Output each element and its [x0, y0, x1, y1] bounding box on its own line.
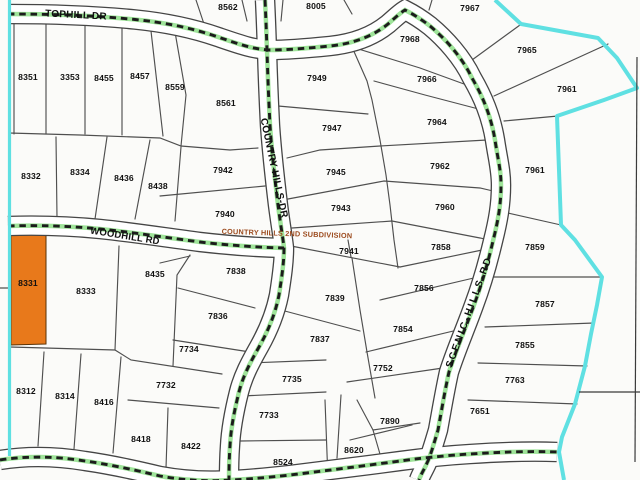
svg-text:7856: 7856 — [414, 283, 434, 293]
svg-text:7941: 7941 — [339, 246, 359, 256]
svg-text:8436: 8436 — [114, 173, 134, 183]
svg-text:7945: 7945 — [326, 167, 346, 177]
svg-text:8351: 8351 — [18, 72, 38, 82]
svg-text:8457: 8457 — [130, 71, 150, 81]
svg-text:7961: 7961 — [525, 165, 545, 175]
svg-text:7859: 7859 — [525, 242, 545, 252]
svg-text:7949: 7949 — [307, 73, 327, 83]
svg-text:7752: 7752 — [373, 363, 393, 373]
svg-text:8435: 8435 — [145, 269, 165, 279]
svg-text:7763: 7763 — [505, 375, 525, 385]
svg-text:8334: 8334 — [70, 167, 90, 177]
svg-text:8438: 8438 — [148, 181, 168, 191]
svg-text:3353: 3353 — [60, 72, 80, 82]
svg-text:7735: 7735 — [282, 374, 302, 384]
svg-text:8524: 8524 — [273, 457, 293, 467]
svg-text:7854: 7854 — [393, 324, 413, 334]
svg-text:8561: 8561 — [216, 98, 236, 108]
svg-text:7855: 7855 — [515, 340, 535, 350]
svg-text:7940: 7940 — [215, 209, 235, 219]
svg-text:7961: 7961 — [557, 84, 577, 94]
svg-text:7890: 7890 — [380, 416, 400, 426]
svg-text:7960: 7960 — [435, 202, 455, 212]
svg-text:7733: 7733 — [259, 410, 279, 420]
svg-text:8559: 8559 — [165, 82, 185, 92]
svg-text:7734: 7734 — [179, 344, 199, 354]
svg-text:8333: 8333 — [76, 286, 96, 296]
svg-text:8314: 8314 — [55, 391, 75, 401]
svg-text:7839: 7839 — [325, 293, 345, 303]
svg-text:7947: 7947 — [322, 123, 342, 133]
svg-text:7964: 7964 — [427, 117, 447, 127]
svg-text:7965: 7965 — [517, 45, 537, 55]
svg-text:7838: 7838 — [226, 266, 246, 276]
svg-text:7943: 7943 — [331, 203, 351, 213]
svg-text:7942: 7942 — [213, 165, 233, 175]
svg-text:8005: 8005 — [306, 1, 326, 11]
svg-text:7732: 7732 — [156, 380, 176, 390]
svg-text:7858: 7858 — [431, 242, 451, 252]
svg-text:7968: 7968 — [400, 34, 420, 44]
svg-text:8418: 8418 — [131, 434, 151, 444]
svg-text:8331: 8331 — [18, 278, 38, 288]
svg-text:7967: 7967 — [460, 3, 480, 13]
svg-text:8416: 8416 — [94, 397, 114, 407]
svg-text:8620: 8620 — [344, 445, 364, 455]
svg-text:8422: 8422 — [181, 441, 201, 451]
svg-text:7651: 7651 — [470, 406, 490, 416]
svg-text:8332: 8332 — [21, 171, 41, 181]
svg-text:7836: 7836 — [208, 311, 228, 321]
svg-text:7966: 7966 — [417, 74, 437, 84]
svg-text:7962: 7962 — [430, 161, 450, 171]
svg-text:8455: 8455 — [94, 73, 114, 83]
svg-text:8562: 8562 — [218, 2, 238, 12]
svg-text:8312: 8312 — [16, 386, 36, 396]
svg-text:7837: 7837 — [310, 334, 330, 344]
svg-text:7857: 7857 — [535, 299, 555, 309]
